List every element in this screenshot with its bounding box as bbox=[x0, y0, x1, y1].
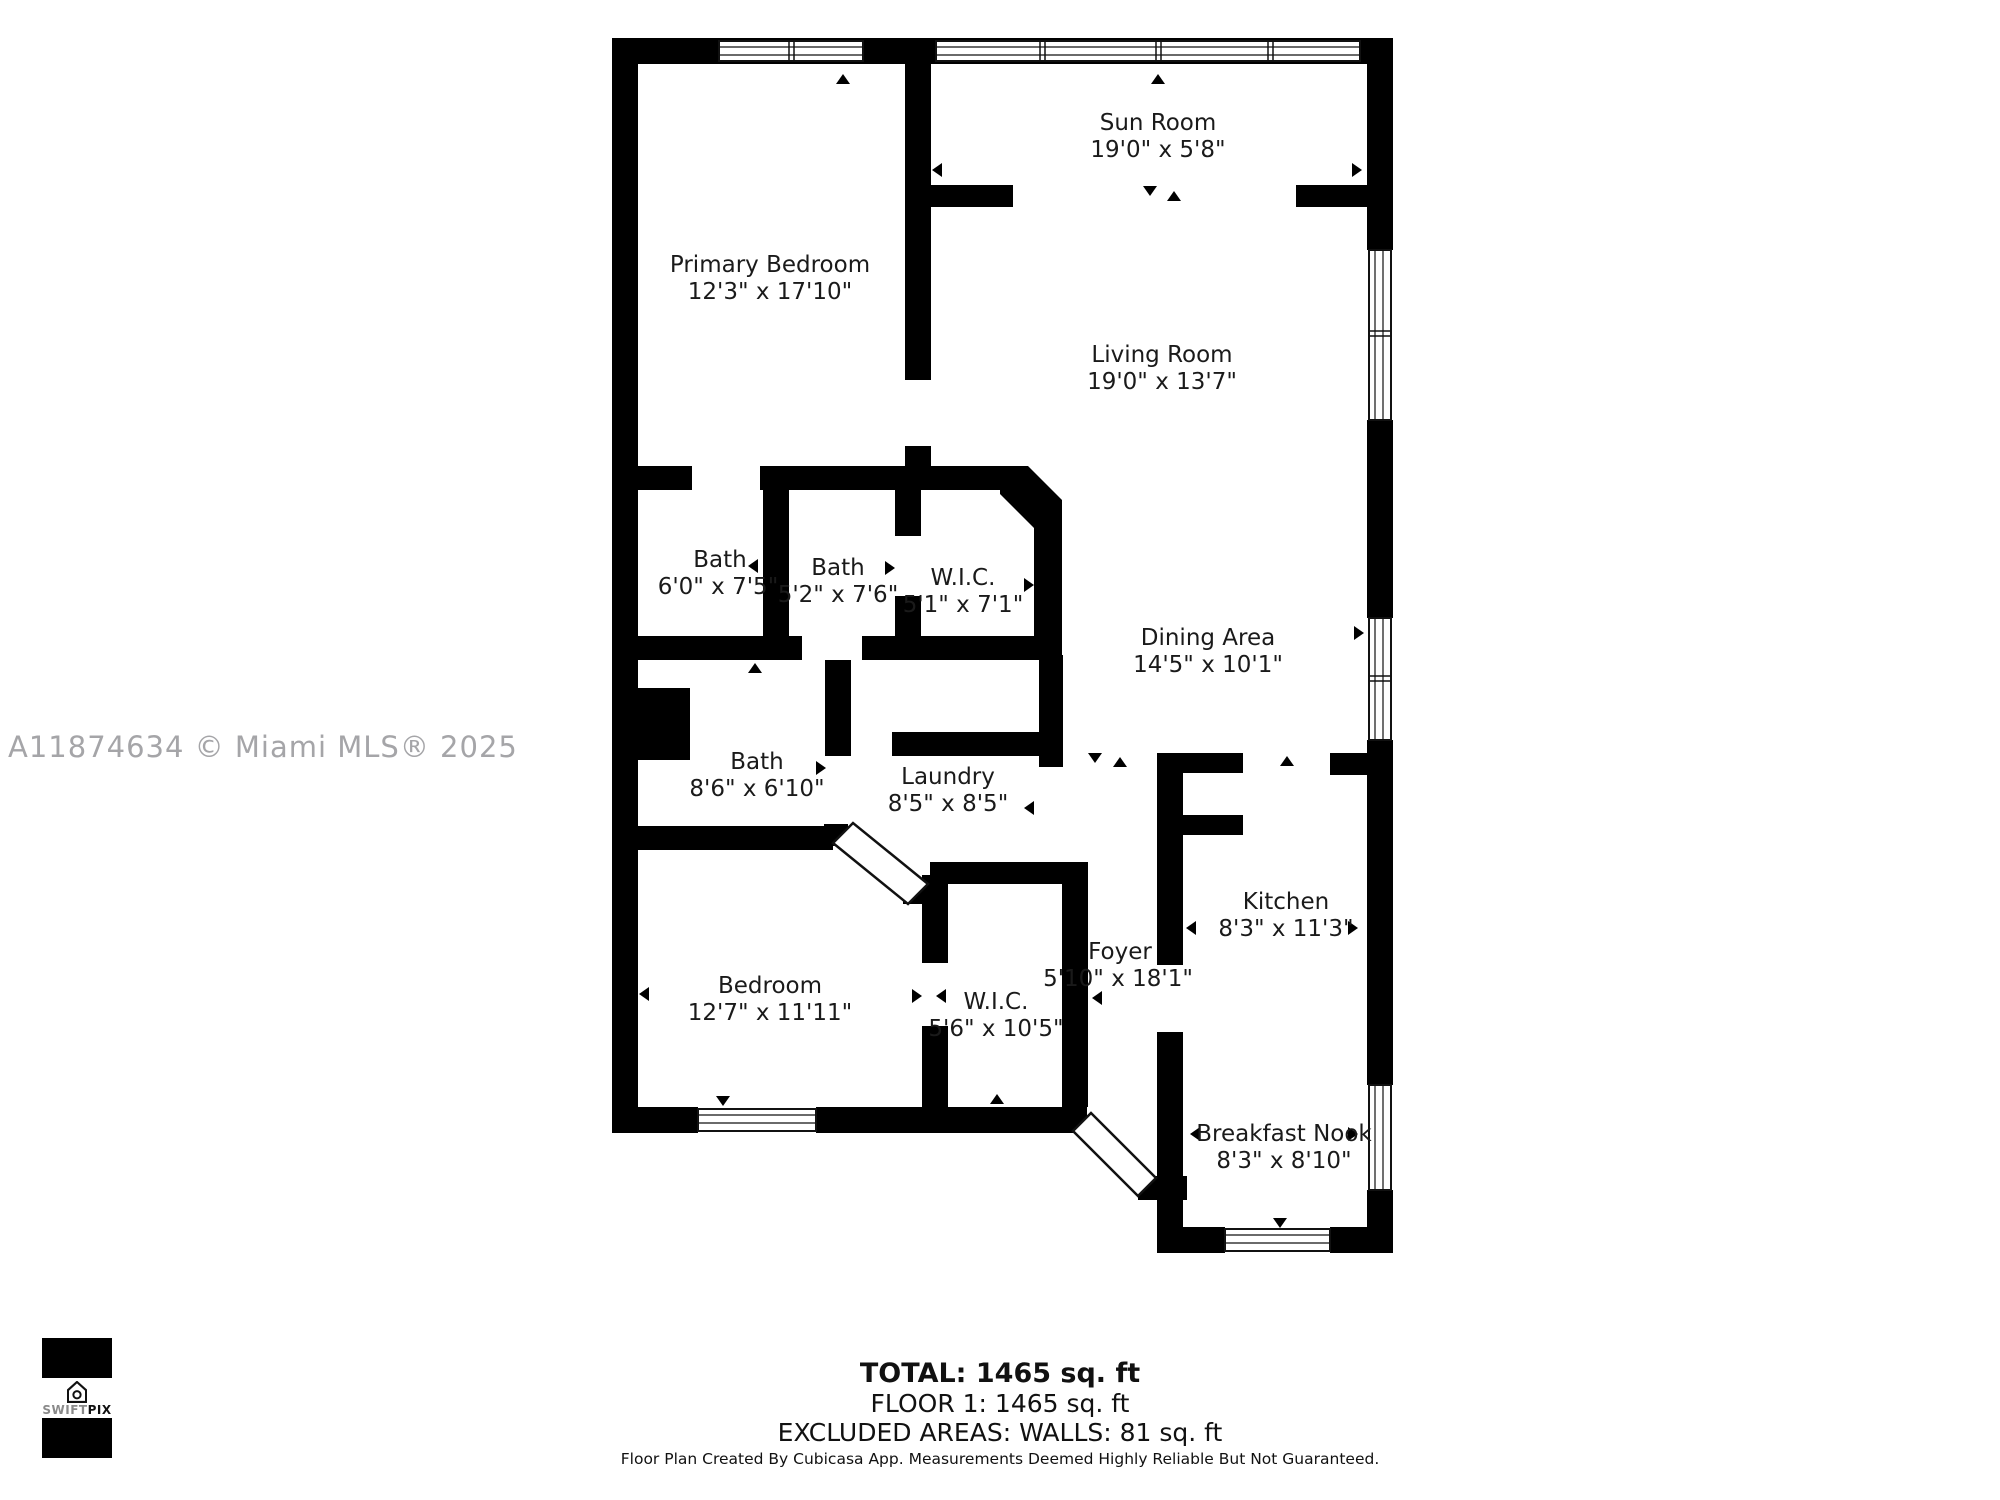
room-dims-sunroom: 19'0" x 5'8" bbox=[1090, 137, 1225, 163]
logo-bottom-block bbox=[42, 1418, 112, 1458]
room-label-living-room: Living Room bbox=[1091, 342, 1232, 368]
window-living-right bbox=[1369, 250, 1391, 420]
room-label-bedroom: Bedroom bbox=[718, 973, 822, 999]
room-label-kitchen: Kitchen bbox=[1243, 889, 1329, 915]
room-dims-bath-3: 8'6" x 6'10" bbox=[689, 776, 824, 802]
room-label-foyer: Foyer bbox=[1088, 939, 1152, 965]
area-summary: TOTAL: 1465 sq. ft FLOOR 1: 1465 sq. ft … bbox=[0, 1358, 2000, 1447]
entry-door bbox=[1073, 1113, 1156, 1196]
window-nook-right bbox=[1369, 1085, 1391, 1190]
room-label-wic-2: W.I.C. bbox=[964, 989, 1029, 1015]
room-label-bath-1: Bath bbox=[693, 547, 746, 573]
room-dims-bedroom: 12'7" x 11'11" bbox=[688, 1000, 852, 1026]
floor-plan: Sun Room 19'0" x 5'8" Primary Bedroom 12… bbox=[0, 0, 2000, 1500]
walls bbox=[612, 38, 1393, 1253]
room-label-breakfast-nook: Breakfast Nook bbox=[1196, 1121, 1372, 1147]
disclaimer-text: Floor Plan Created By Cubicasa App. Meas… bbox=[0, 1450, 2000, 1468]
room-dims-wic-1: 5'1" x 7'1" bbox=[903, 592, 1024, 618]
room-label-primary-bedroom: Primary Bedroom bbox=[670, 252, 870, 278]
logo-swift: SWIFT bbox=[42, 1403, 87, 1417]
room-dims-wic-2: 5'6" x 10'5" bbox=[928, 1016, 1063, 1042]
total-area: TOTAL: 1465 sq. ft bbox=[0, 1358, 2000, 1389]
room-dims-primary-bedroom: 12'3" x 17'10" bbox=[688, 279, 852, 305]
floorplan-page: A11874634 © Miami MLS® 2025 bbox=[0, 0, 2000, 1500]
floor1-area: FLOOR 1: 1465 sq. ft bbox=[0, 1389, 2000, 1418]
room-label-laundry: Laundry bbox=[901, 764, 995, 790]
room-dims-bath-2: 5'2" x 7'6" bbox=[778, 582, 899, 608]
room-dims-bath-1: 6'0" x 7'5" bbox=[658, 574, 779, 600]
logo-mid: SWIFTPIX bbox=[42, 1378, 112, 1418]
excluded-area: EXCLUDED AREAS: WALLS: 81 sq. ft bbox=[0, 1418, 2000, 1447]
room-label-wic-1: W.I.C. bbox=[931, 565, 996, 591]
swiftpix-logo: SWIFTPIX bbox=[42, 1338, 112, 1458]
hall-diagonal-door bbox=[833, 823, 928, 904]
room-dims-living-room: 19'0" x 13'7" bbox=[1087, 369, 1237, 395]
logo-top-block bbox=[42, 1338, 112, 1378]
window-sunroom-band bbox=[936, 41, 1360, 61]
window-dining-right bbox=[1369, 618, 1391, 740]
room-dims-laundry: 8'5" x 8'5" bbox=[888, 791, 1009, 817]
room-label-dining-area: Dining Area bbox=[1141, 625, 1276, 651]
logo-wordmark: SWIFTPIX bbox=[42, 1404, 111, 1416]
house-icon bbox=[67, 1381, 87, 1403]
room-label-bath-2: Bath bbox=[811, 555, 864, 581]
window-nook-bottom bbox=[1225, 1229, 1330, 1251]
window-bedroom-bottom bbox=[698, 1109, 816, 1131]
room-dims-dining-area: 14'5" x 10'1" bbox=[1133, 652, 1283, 678]
room-dims-kitchen: 8'3" x 11'3" bbox=[1218, 916, 1353, 942]
room-label-bath-3: Bath bbox=[730, 749, 783, 775]
room-dims-breakfast-nook: 8'3" x 8'10" bbox=[1216, 1148, 1351, 1174]
room-label-sunroom: Sun Room bbox=[1100, 110, 1217, 136]
logo-pix: PIX bbox=[88, 1403, 112, 1417]
window-primary-top bbox=[719, 41, 863, 61]
room-dims-foyer: 5'10" x 18'1" bbox=[1043, 966, 1193, 992]
